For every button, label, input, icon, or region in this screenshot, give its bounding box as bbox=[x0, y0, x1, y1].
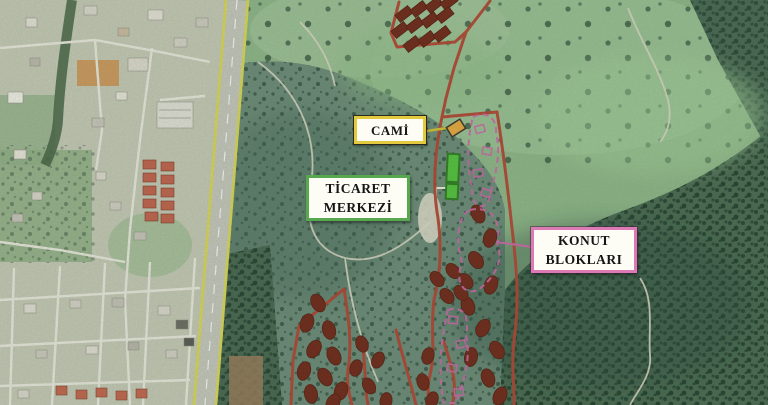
konut-label-line1: KONUT bbox=[558, 231, 610, 250]
cami-label-text: CAMİ bbox=[371, 121, 409, 140]
ticaret-label-line2: MERKEZİ bbox=[324, 198, 393, 217]
ticaret-label-line1: TİCARET bbox=[325, 179, 390, 198]
aerial-map: CAMİ TİCARET MERKEZİ KONUT BLOKLARI bbox=[0, 0, 768, 405]
konut-bloklari-label: KONUT BLOKLARI bbox=[531, 227, 637, 273]
konut-label-line2: BLOKLARI bbox=[546, 250, 623, 269]
cami-label: CAMİ bbox=[354, 116, 426, 144]
ticaret-merkezi-label: TİCARET MERKEZİ bbox=[306, 175, 410, 221]
